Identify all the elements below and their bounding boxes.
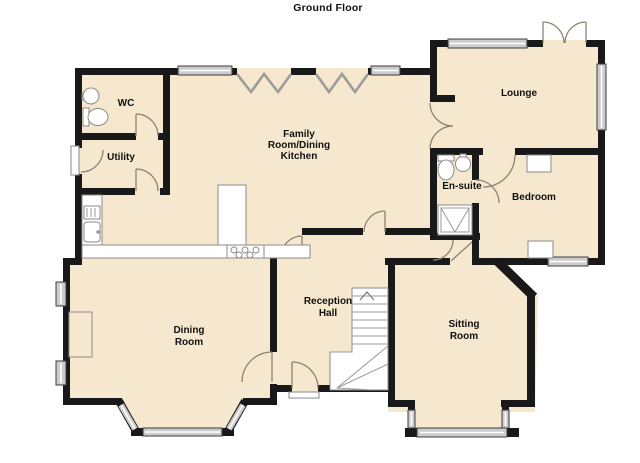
dining-fireplace <box>69 312 92 357</box>
label-lounge: Lounge <box>501 88 538 99</box>
label-family-2: Room/Dining <box>268 140 330 151</box>
window-family-top-2 <box>371 66 400 75</box>
lounge-french-doors <box>543 22 586 43</box>
floor-plan-page: Ground Floor <box>0 0 640 463</box>
label-wc: WC <box>118 98 135 109</box>
label-reception-1: Reception <box>304 296 352 307</box>
window-lounge-top <box>448 39 527 48</box>
wc-toilet <box>88 109 108 126</box>
label-ensuite: En-suite <box>442 181 482 192</box>
bedroom-wardrobe-top <box>527 155 551 172</box>
window-lounge-right <box>597 64 606 130</box>
kitchen-counter-bottom <box>82 245 310 258</box>
window-family-top <box>178 66 232 75</box>
kitchen-hob <box>227 245 264 258</box>
kitchen-sink-tap <box>96 230 99 233</box>
label-reception-2: Hall <box>319 308 338 319</box>
window-dining-left-upper <box>56 282 66 306</box>
label-family-1: Family <box>283 129 315 140</box>
label-utility: Utility <box>107 152 135 163</box>
front-door-threshold <box>289 392 319 398</box>
ensuite-basin-tap <box>460 154 466 157</box>
bedroom-wardrobe-bottom <box>528 241 553 258</box>
label-sitting-2: Room <box>450 331 478 342</box>
plan-title: Ground Floor <box>293 2 362 14</box>
label-dining-2: Room <box>175 337 203 348</box>
label-dining-1: Dining <box>173 325 204 336</box>
floor-plan: Ground Floor <box>0 0 640 463</box>
ensuite-toilet <box>438 160 454 180</box>
label-family-3: Kitchen <box>281 151 318 162</box>
kitchen-unit <box>218 185 246 245</box>
kitchen-drainer <box>84 206 100 219</box>
ensuite-shower <box>438 205 472 235</box>
ensuite-basin <box>456 157 471 172</box>
label-sitting-1: Sitting <box>448 319 479 330</box>
window-dining-left-lower <box>56 361 66 385</box>
label-bedroom: Bedroom <box>512 192 556 203</box>
wc-basin <box>83 88 99 104</box>
window-bedroom-bottom <box>548 257 588 266</box>
